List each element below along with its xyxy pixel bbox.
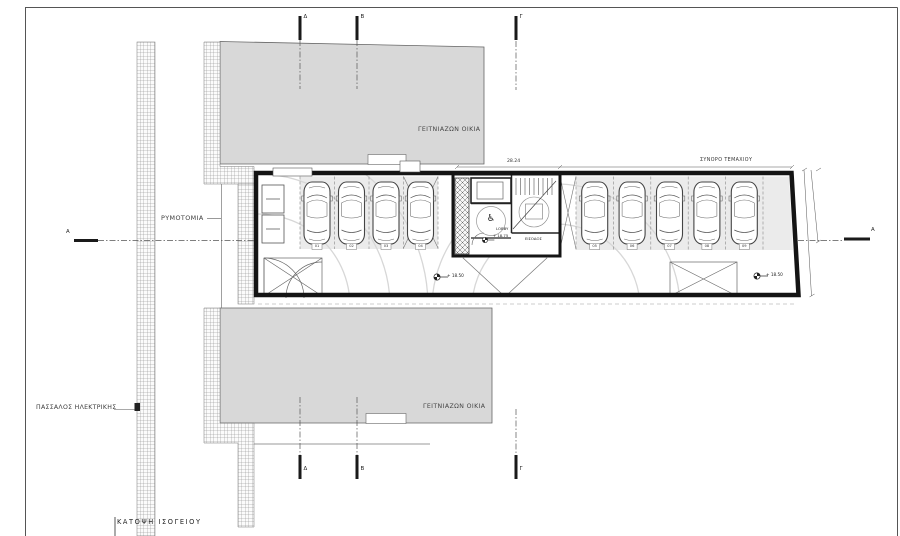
stall-number: 05 <box>590 244 600 250</box>
section-letter-a-right: Α <box>871 228 875 234</box>
neighbor-house-top-label: ΓΕΙΤΝΙΑΖΩΝ ΟΙΚΙΑ <box>418 127 480 134</box>
neighbor-house-bottom-label: ΓΕΙΤΝΙΑΖΩΝ ΟΙΚΙΑ <box>423 404 485 411</box>
plot-boundary-label: ΣΥΝΟΡΟ ΤΕΜΑΧΙΟΥ <box>700 158 752 163</box>
stall-number: 04 <box>416 244 426 250</box>
car-icon <box>729 182 760 244</box>
stall-number: 06 <box>627 244 637 250</box>
section-letter-c-top: Γ <box>520 15 523 21</box>
garage-level-right: + 18.50 <box>766 273 783 278</box>
drawing-title: ΚΑΤΟΨΗ ΙΣΟΓΕΙΟΥ <box>117 519 202 526</box>
stair-strip <box>455 178 469 254</box>
stall-number: 01 <box>312 244 322 250</box>
section-letter-d-bottom: Δ <box>304 467 308 473</box>
section-letter-c-bottom: Γ <box>520 467 523 473</box>
stall-number: 07 <box>665 244 675 250</box>
lobby-label: LOBBY <box>496 227 508 231</box>
floor-plan-sheet: ΓΕΙΤΝΙΑΖΩΝ ΟΙΚΙΑ ΓΕΙΤΝΙΑΖΩΝ ΟΙΚΙΑ ΡΥΜΟΤΟ… <box>0 0 900 536</box>
stall-number: 08 <box>702 244 712 250</box>
section-letter-b-top: Β <box>361 15 365 21</box>
stall-number: 02 <box>347 244 357 250</box>
electric-pole <box>135 403 141 411</box>
section-letter-d-top: Δ <box>304 15 308 21</box>
electric-pole-label: ΠΑΣΣΑΛΟΣ ΗΛΕΚΤΡΙΚΗΣ <box>36 405 116 412</box>
car-icon <box>302 182 333 244</box>
wheelchair-icon: ♿ <box>484 214 498 224</box>
core <box>453 174 560 256</box>
entrance-label: ΕΙΣΟΔΟΣ <box>525 237 542 241</box>
neighbor-building-top <box>220 42 484 165</box>
car-icon <box>692 182 723 244</box>
car-icon <box>654 182 685 244</box>
section-letter-b-bottom: Β <box>361 467 365 473</box>
street-alignment-label: ΡΥΜΟΤΟΜΙΑ <box>161 215 204 222</box>
floor-plan-drawing <box>0 0 900 536</box>
car-icon <box>579 182 610 244</box>
garage-level-left: + 18.50 <box>447 274 464 279</box>
car-icon <box>336 182 367 244</box>
car-icon <box>405 182 436 244</box>
lobby-level: + 18.75 <box>493 234 508 238</box>
section-letter-a-left: Α <box>66 230 70 236</box>
car-icon <box>371 182 402 244</box>
plot-front-dimension: 28.24 <box>507 159 520 164</box>
car-icon <box>617 182 648 244</box>
stall-number: 03 <box>381 244 391 250</box>
stall-number: 09 <box>739 244 749 250</box>
